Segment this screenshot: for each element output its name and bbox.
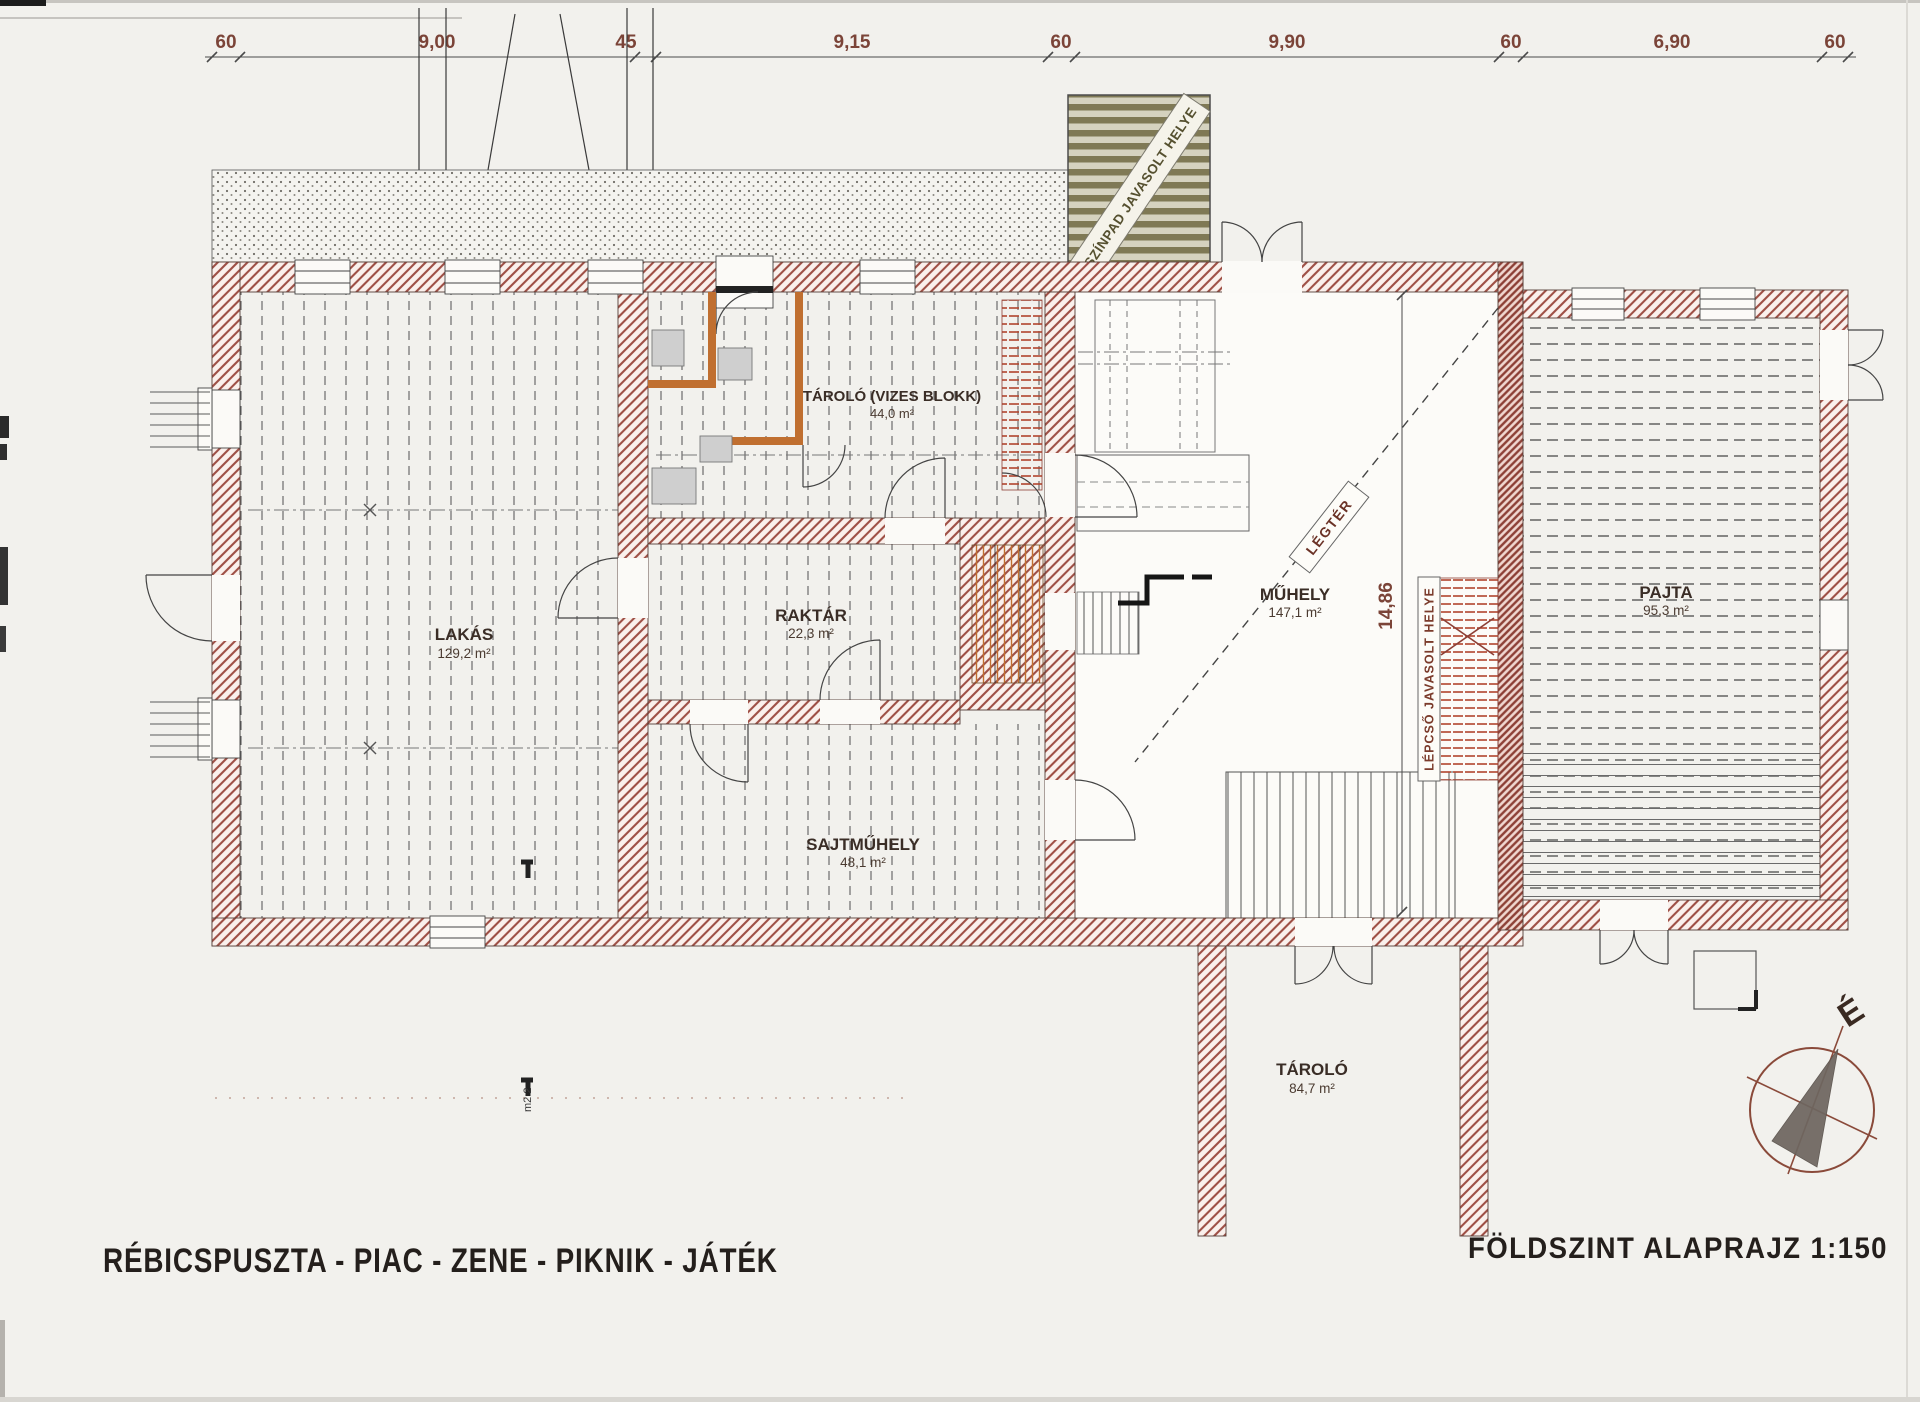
room-label-pajta: PAJTA 95,3 m² <box>1639 583 1692 618</box>
proposed-stair: LÉPCSŐ JAVASOLT HELYE <box>1418 577 1498 781</box>
room-label-muhely: MŰHELY 147,1 m² <box>1260 585 1331 620</box>
pajta-deck <box>1523 745 1820 900</box>
raktar-area: 22,3 m² <box>788 626 834 641</box>
north-needle <box>1772 1049 1838 1167</box>
muhely-area: 147,1 m² <box>1268 605 1322 620</box>
window <box>1572 288 1624 320</box>
lakas-area: 129,2 m² <box>437 646 491 661</box>
dim-label-8: 60 <box>1824 32 1845 53</box>
top-dimension-chain: 60 9,00 45 9,15 60 9,90 60 6,90 60 <box>205 32 1856 62</box>
room-label-tarolo: TÁROLÓ 84,7 m² <box>1276 1060 1348 1096</box>
dim-label-0: 60 <box>215 32 236 53</box>
dim-label-5: 9,90 <box>1269 32 1306 53</box>
floor-plan-drawing: 60 9,00 45 9,15 60 9,90 60 6,90 60 SZÍNP… <box>0 0 1920 1402</box>
muhely-name: MŰHELY <box>1260 585 1331 604</box>
compass-rose: É <box>1694 951 1877 1174</box>
dim-label-2: 45 <box>615 32 637 53</box>
window <box>1700 288 1755 320</box>
window <box>430 916 485 948</box>
dim-label-1: 9,00 <box>419 32 456 53</box>
terrace-dotted-strip <box>212 170 1068 262</box>
lakas-floor <box>240 292 618 918</box>
tarolo-vizes-name: TÁROLÓ (VIZES BLOKK) <box>803 387 981 405</box>
dim-label-3: 9,15 <box>834 32 871 53</box>
raktar-name: RAKTÁR <box>775 606 847 625</box>
wall-pajta-south <box>1523 900 1848 930</box>
window <box>445 260 500 294</box>
wall-court-east <box>1498 262 1523 930</box>
north-label: É <box>1831 991 1871 1035</box>
tarolo-name: TÁROLÓ <box>1276 1060 1348 1079</box>
tarolo-area: 84,7 m² <box>1289 1081 1335 1096</box>
dim-label-4: 60 <box>1050 32 1071 53</box>
wall-yard-east <box>1460 946 1488 1236</box>
stairs-proposed-label: LÉPCSŐ JAVASOLT HELYE <box>1422 587 1437 771</box>
dim-label-6: 60 <box>1500 32 1521 53</box>
sajtmuhely-floor <box>648 724 1045 918</box>
window <box>198 698 240 760</box>
room-label-lakas: LAKÁS 129,2 m² <box>435 625 494 661</box>
pajta-area: 95,3 m² <box>1643 603 1689 618</box>
lakas-name: LAKÁS <box>435 625 494 644</box>
wide-exterior-stair <box>1226 772 1455 918</box>
dim-label-7: 6,90 <box>1654 32 1691 53</box>
sajtmuhely-name: SAJTMŰHELY <box>806 835 920 854</box>
drawing-title: FÖLDSZINT ALAPRAJZ 1:150 <box>1468 1231 1888 1265</box>
window <box>198 388 240 450</box>
wet-block-floor <box>648 292 1045 518</box>
window <box>1820 600 1848 650</box>
section-mark-label: m2 2 <box>522 1088 534 1112</box>
wall-yard-west <box>1198 946 1226 1236</box>
sajtmuhely-area: 48,1 m² <box>840 855 886 870</box>
vertical-dim-label: 14,86 <box>1376 582 1397 630</box>
scanned-floor-plan-sheet: 60 9,00 45 9,15 60 9,90 60 6,90 60 SZÍNP… <box>0 0 1920 1402</box>
window <box>860 260 915 294</box>
window <box>295 260 350 294</box>
enclosed-stair-treads <box>972 545 1043 683</box>
proposed-stage: SZÍNPAD JAVASOLT HELYE <box>1068 93 1210 280</box>
tarolo-vizes-area: 44,0 m² <box>870 406 915 421</box>
project-title: RÉBICSPUSZTA - PIAC - ZENE - PIKNIK - JÁ… <box>103 1241 778 1279</box>
pajta-name: PAJTA <box>1639 583 1692 602</box>
window <box>588 260 643 294</box>
stair-landing <box>1077 455 1249 531</box>
window-bay <box>716 256 773 308</box>
wetblock-side-stair <box>1002 300 1042 490</box>
title-block: RÉBICSPUSZTA - PIAC - ZENE - PIKNIK - JÁ… <box>103 1231 1888 1280</box>
